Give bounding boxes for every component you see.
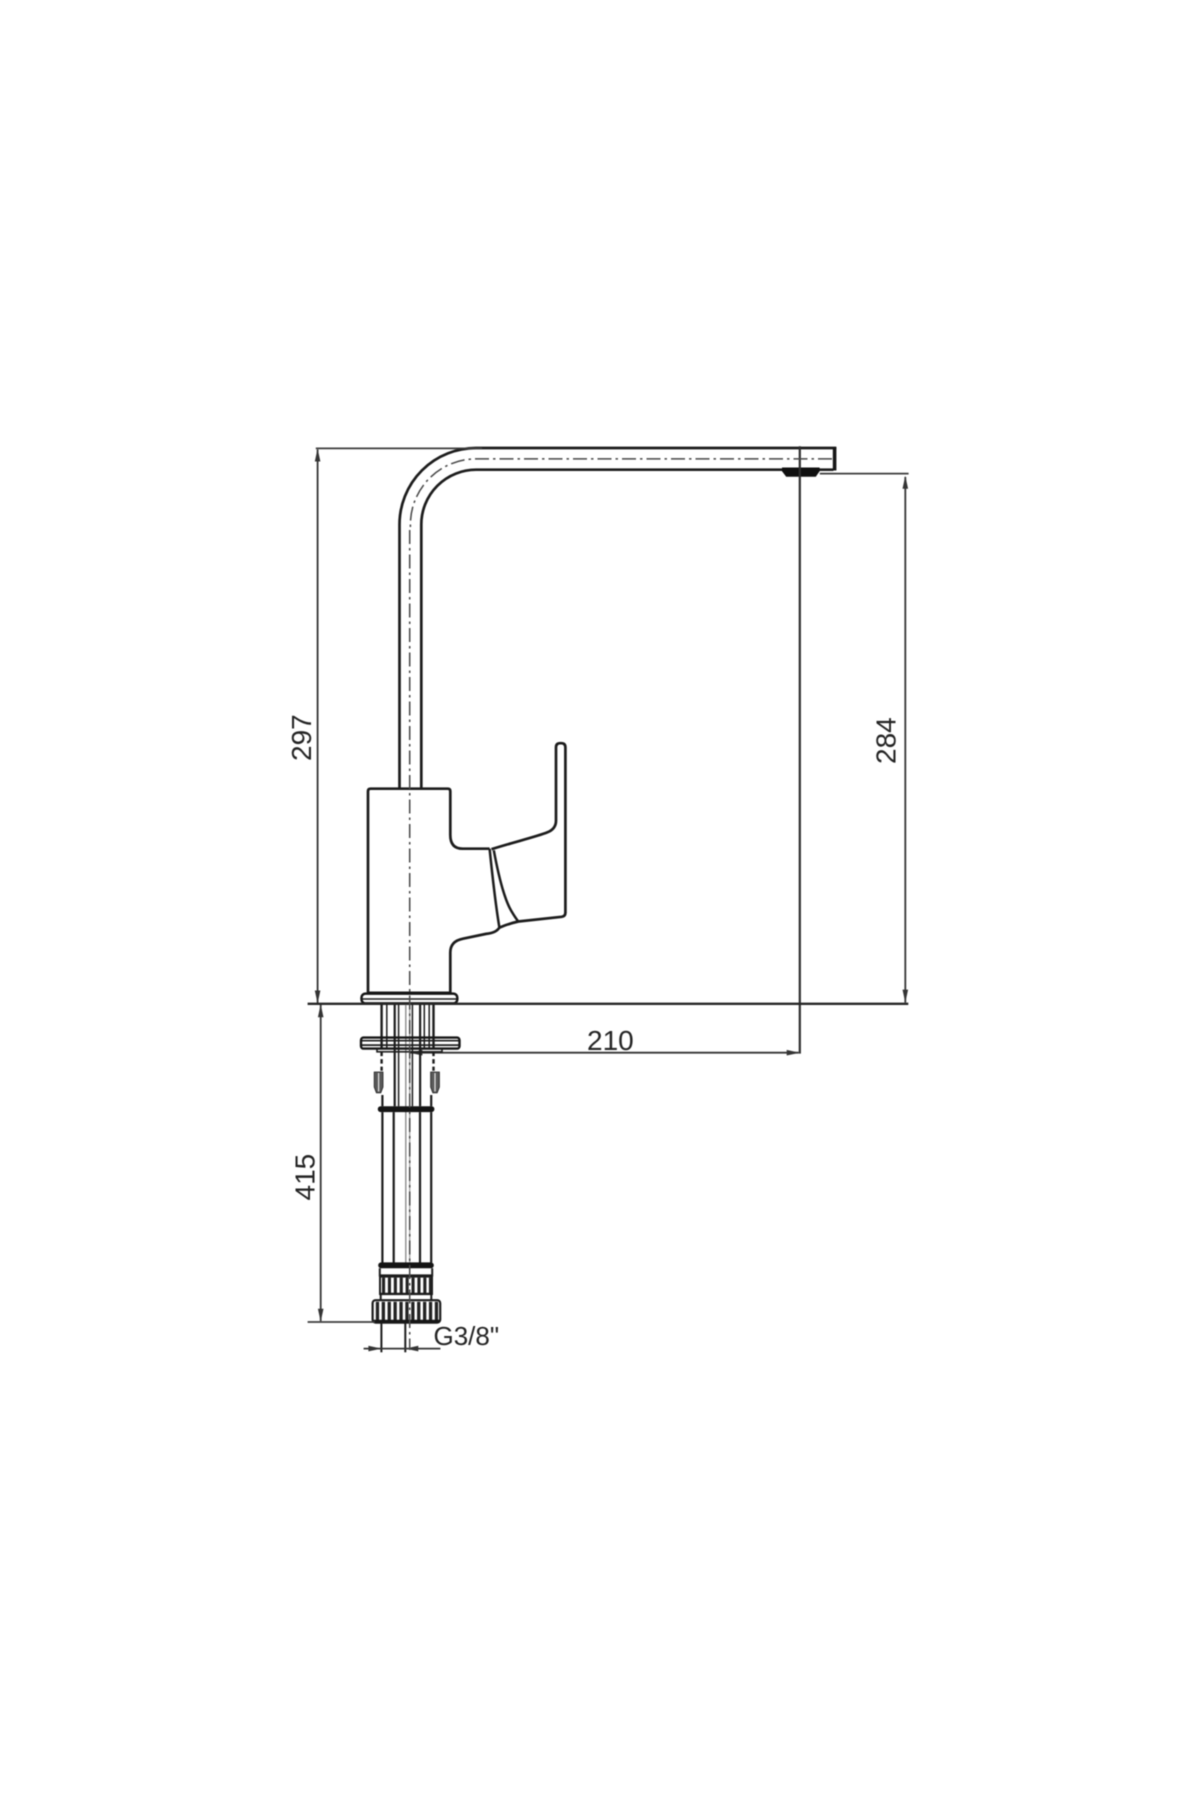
- svg-text:297: 297: [286, 714, 317, 761]
- svg-text:210: 210: [587, 1025, 634, 1056]
- svg-text:284: 284: [871, 717, 902, 764]
- svg-text:G3/8": G3/8": [434, 1321, 500, 1351]
- svg-text:415: 415: [290, 1154, 321, 1201]
